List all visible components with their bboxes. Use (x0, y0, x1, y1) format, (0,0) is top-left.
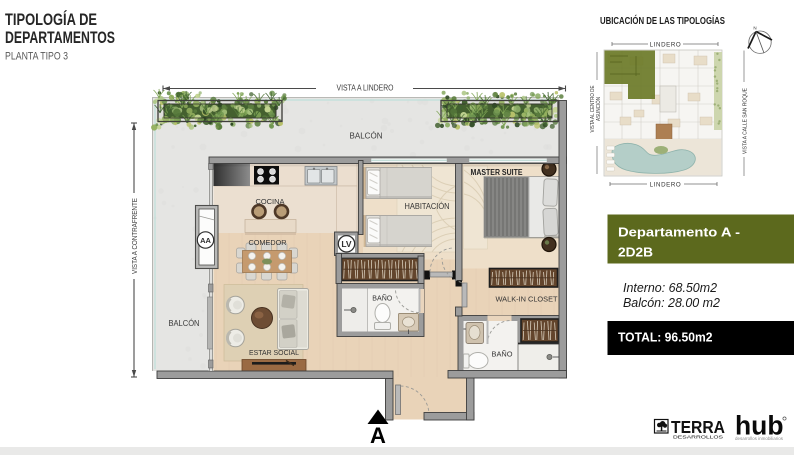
svg-text:COCINA: COCINA (256, 197, 286, 206)
svg-text:Interno: 68.50m2: Interno: 68.50m2 (623, 281, 717, 295)
svg-text:COMEDOR: COMEDOR (249, 238, 287, 247)
svg-text:desarrollos inmobiliarios: desarrollos inmobiliarios (735, 436, 783, 441)
svg-text:Departamento A -: Departamento A - (618, 225, 740, 240)
svg-text:UBICACIÓN DE LAS TIPOLOGÍAS: UBICACIÓN DE LAS TIPOLOGÍAS (600, 14, 725, 27)
svg-text:BALCÓN: BALCÓN (350, 131, 383, 141)
svg-text:VISTA A LINDERO: VISTA A LINDERO (337, 84, 394, 93)
svg-text:WALK-IN CLOSET: WALK-IN CLOSET (496, 295, 558, 304)
svg-text:LINDERO: LINDERO (650, 182, 682, 189)
svg-text:N: N (753, 26, 756, 31)
svg-text:VISTA A CONTRAFRENTE: VISTA A CONTRAFRENTE (130, 198, 139, 274)
svg-text:VISTA A CALLE SAN ROQUE: VISTA A CALLE SAN ROQUE (743, 88, 749, 154)
svg-text:A: A (370, 423, 386, 448)
svg-text:TIPOLOGÍA DE: TIPOLOGÍA DE (5, 10, 97, 29)
svg-text:AA: AA (200, 236, 211, 245)
svg-text:LINDERO: LINDERO (650, 42, 682, 49)
svg-text:2D2B: 2D2B (618, 245, 653, 260)
svg-text:BALCÓN: BALCÓN (169, 319, 200, 328)
svg-text:BAÑO: BAÑO (372, 293, 392, 302)
svg-text:DESARROLLOS: DESARROLLOS (673, 435, 723, 440)
svg-text:TOTAL: 96.50m2: TOTAL: 96.50m2 (618, 330, 713, 345)
svg-text:PLANTA TIPO 3: PLANTA TIPO 3 (5, 51, 68, 63)
svg-text:DEPARTAMENTOS: DEPARTAMENTOS (5, 29, 115, 47)
svg-text:MASTER SUITE: MASTER SUITE (471, 168, 524, 177)
svg-text:BAÑO: BAÑO (492, 349, 513, 358)
svg-text:LV: LV (341, 239, 352, 249)
svg-text:ASUNCIÓN: ASUNCIÓN (595, 97, 602, 121)
svg-text:ESTAR SOCIAL: ESTAR SOCIAL (249, 348, 299, 357)
svg-text:HABITACIÓN: HABITACIÓN (405, 202, 450, 211)
svg-text:Balcón: 28.00 m2: Balcón: 28.00 m2 (623, 296, 720, 310)
